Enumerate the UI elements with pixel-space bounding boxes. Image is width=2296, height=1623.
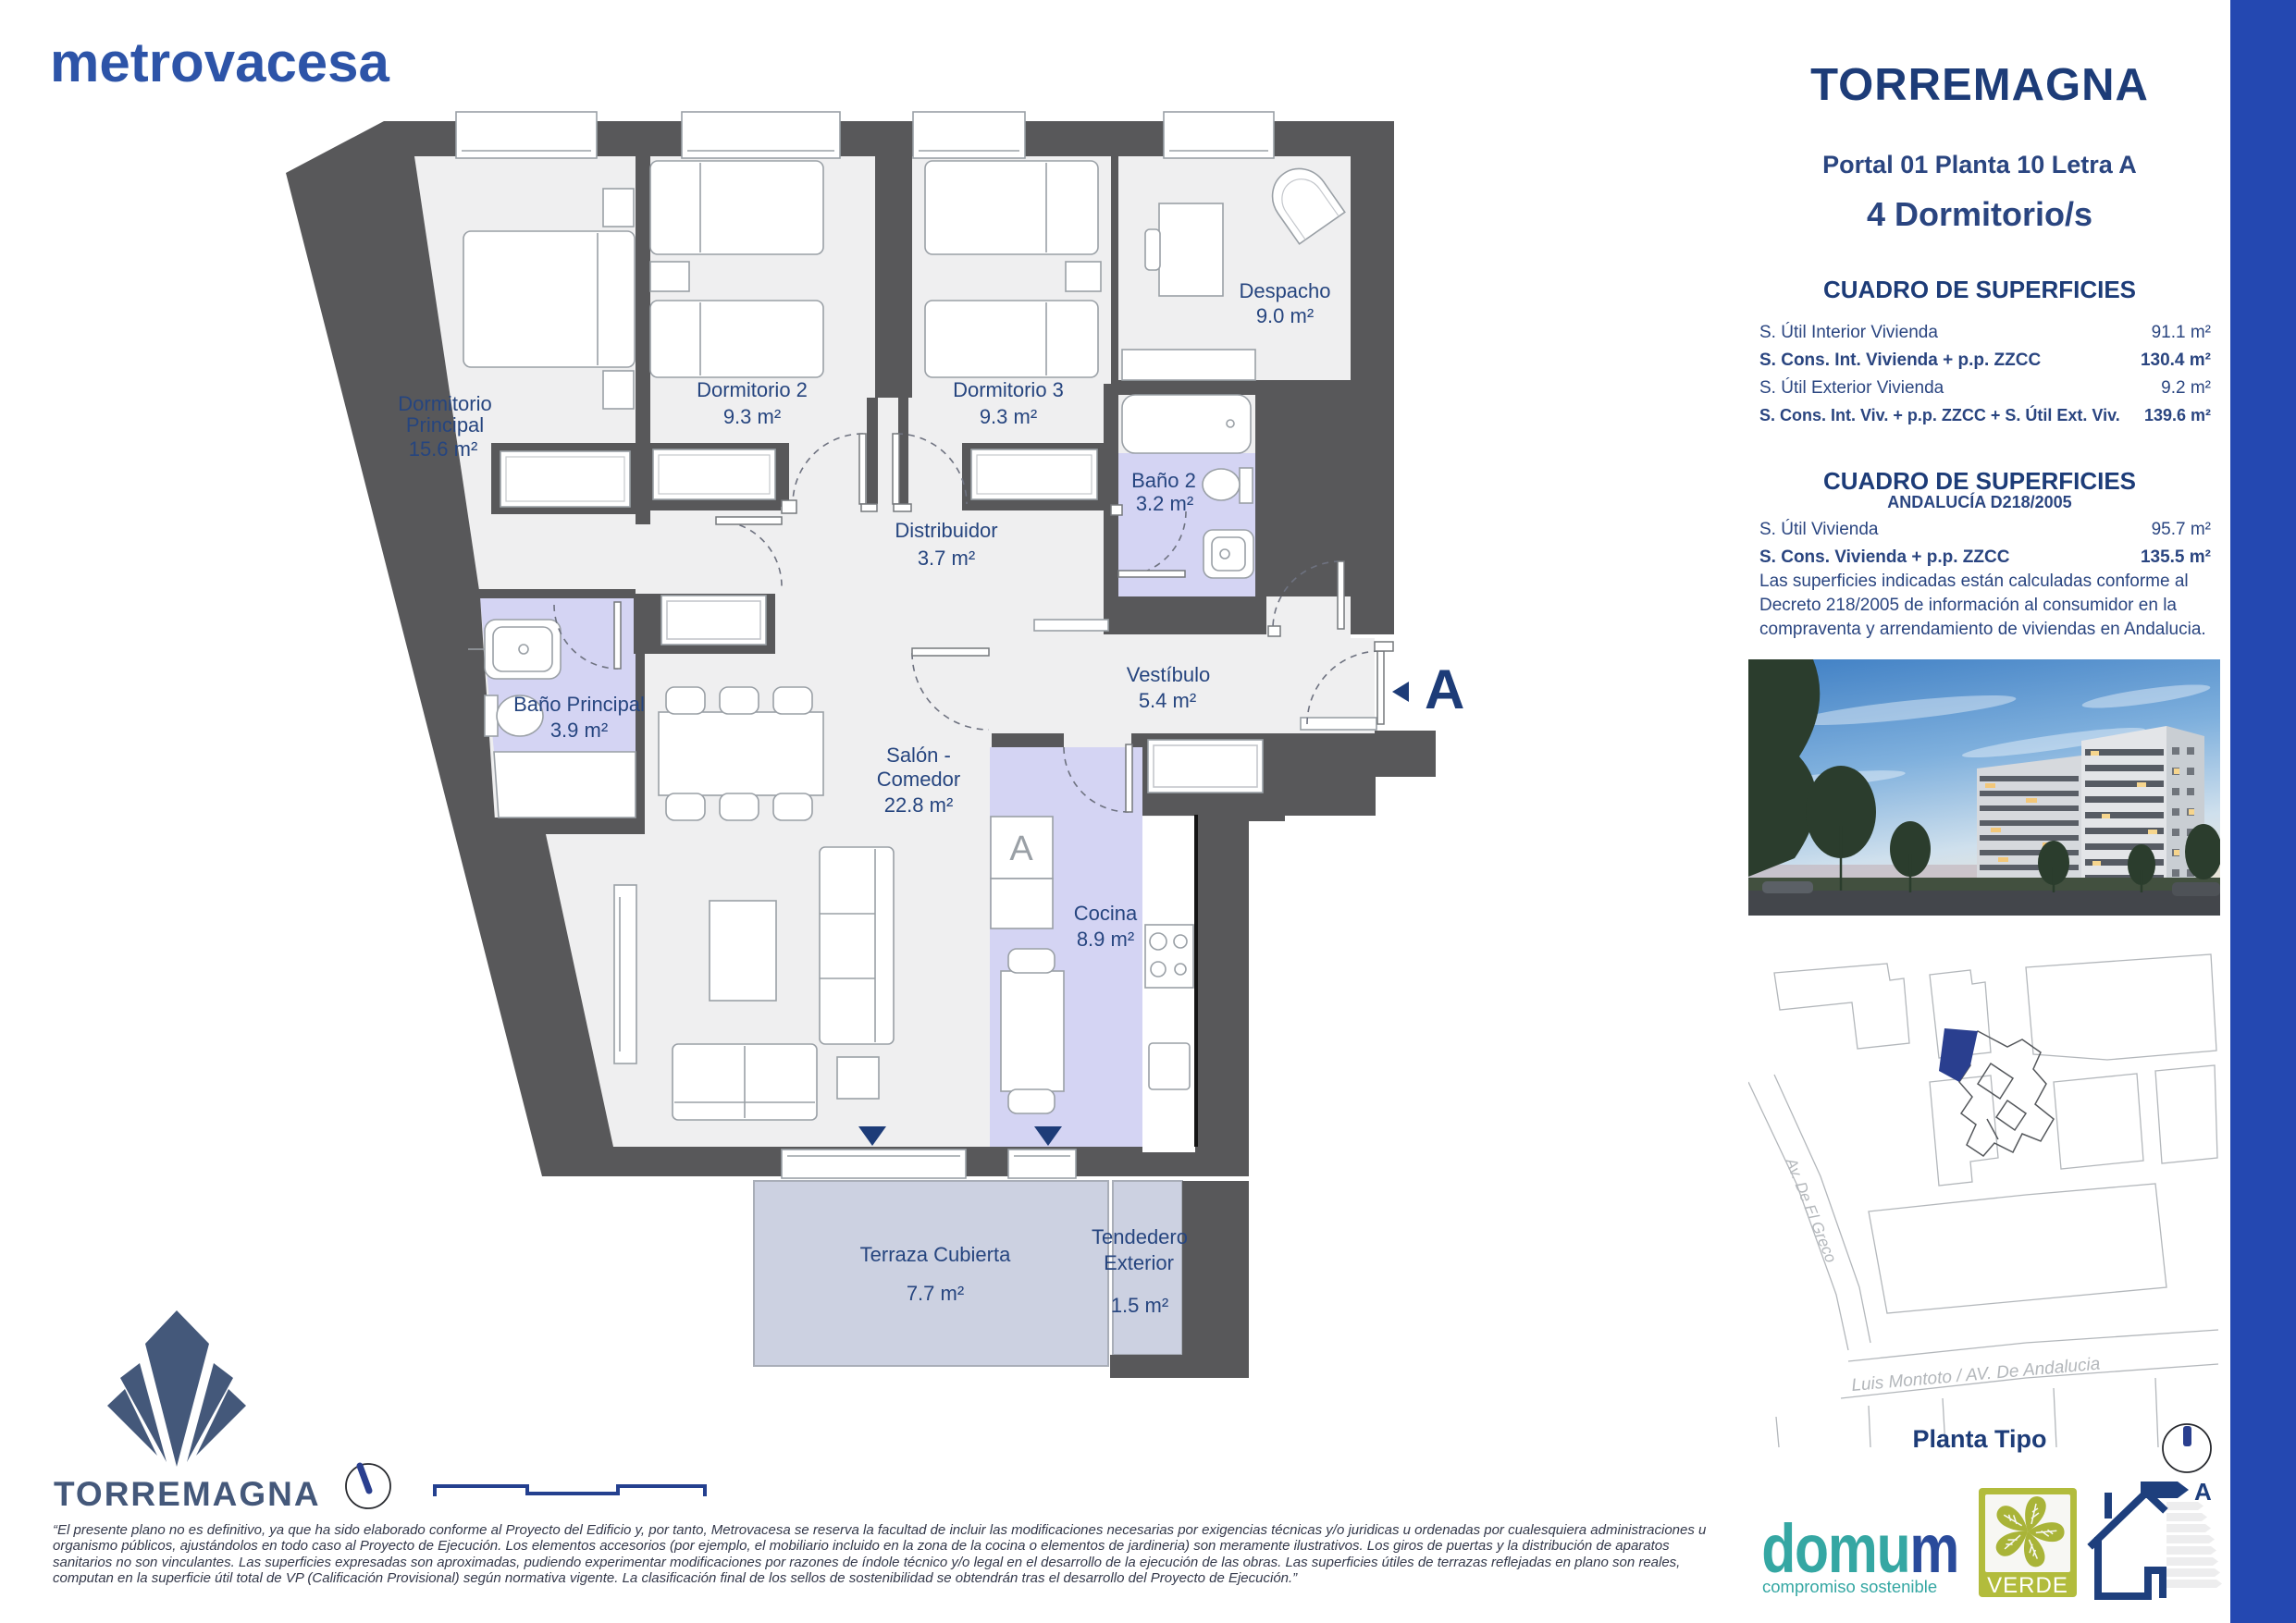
- svg-text:3.9 m²: 3.9 m²: [550, 719, 608, 742]
- svg-text:compromiso sostenible: compromiso sostenible: [1762, 1577, 1937, 1596]
- svg-text:Dormitorio 3: Dormitorio 3: [953, 378, 1064, 401]
- svg-text:VERDE: VERDE: [1987, 1573, 2068, 1598]
- svg-text:Baño Principal: Baño Principal: [513, 693, 645, 716]
- svg-text:Salón -: Salón -: [886, 744, 951, 767]
- svg-text:Cocina: Cocina: [1074, 902, 1138, 925]
- svg-text:1.5 m²: 1.5 m²: [1111, 1294, 1168, 1317]
- svg-text:Despacho: Despacho: [1239, 279, 1330, 302]
- svg-text:A: A: [1009, 830, 1033, 868]
- svg-text:A: A: [1425, 658, 1464, 720]
- svg-text:Luis Montoto / AV. De Andaluci: Luis Montoto / AV. De Andalucia: [1851, 1355, 2101, 1396]
- svg-text:3.2 m²: 3.2 m²: [1136, 492, 1193, 515]
- svg-text:5.4 m²: 5.4 m²: [1139, 689, 1196, 712]
- svg-text:3.7 m²: 3.7 m²: [918, 547, 975, 570]
- svg-text:A: A: [2194, 1478, 2212, 1506]
- svg-text:9.0 m²: 9.0 m²: [1256, 304, 1314, 327]
- svg-text:Dormitorio 2: Dormitorio 2: [697, 378, 808, 401]
- svg-text:Av. De El Greco: Av. De El Greco: [1782, 1154, 1840, 1265]
- svg-text:Distribuidor: Distribuidor: [895, 519, 997, 542]
- svg-text:Principal: Principal: [406, 413, 484, 436]
- svg-text:9.3 m²: 9.3 m²: [980, 405, 1037, 428]
- svg-text:Tendedero: Tendedero: [1092, 1225, 1188, 1248]
- svg-text:Vestíbulo: Vestíbulo: [1127, 663, 1211, 686]
- svg-text:22.8 m²: 22.8 m²: [884, 793, 954, 817]
- svg-text:Exterior: Exterior: [1104, 1251, 1174, 1274]
- svg-text:Terraza Cubierta: Terraza Cubierta: [860, 1243, 1011, 1266]
- svg-text:Comedor: Comedor: [877, 768, 960, 791]
- svg-text:7.7 m²: 7.7 m²: [907, 1282, 964, 1305]
- svg-text:9.3 m²: 9.3 m²: [723, 405, 781, 428]
- svg-text:8.9 m²: 8.9 m²: [1077, 928, 1134, 951]
- svg-text:TORREMAGNA: TORREMAGNA: [54, 1475, 321, 1513]
- svg-text:Baño 2: Baño 2: [1131, 469, 1196, 492]
- svg-text:15.6 m²: 15.6 m²: [409, 437, 478, 461]
- svg-text:Dormitorio: Dormitorio: [398, 392, 491, 415]
